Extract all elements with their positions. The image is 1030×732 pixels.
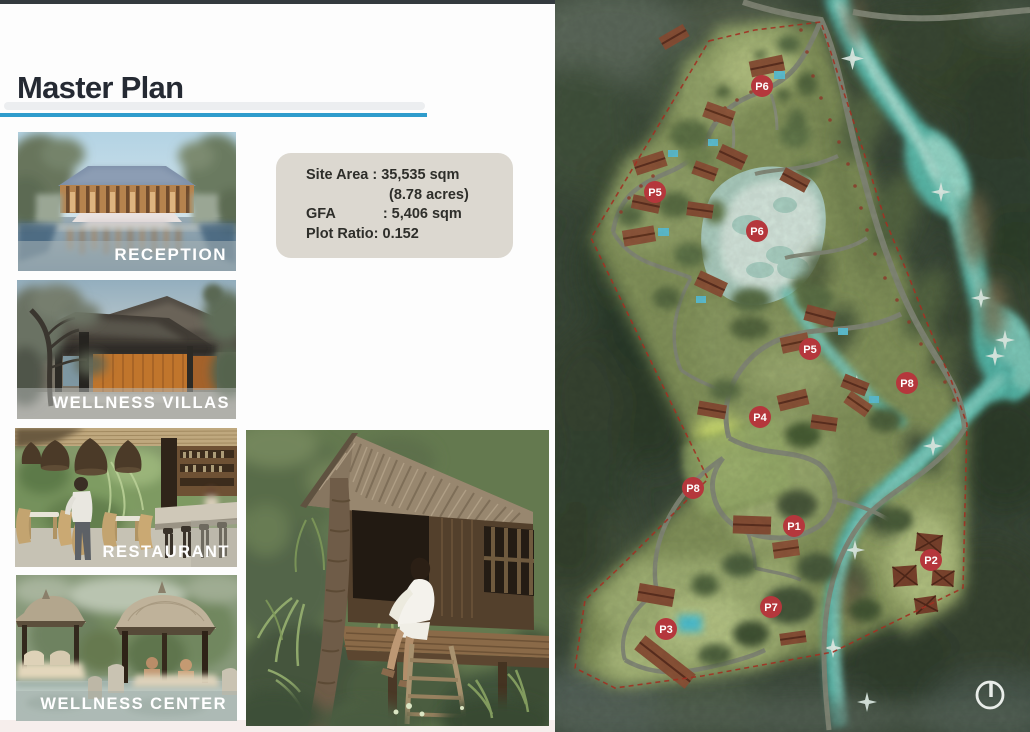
svg-text:P7: P7: [764, 602, 777, 614]
svg-text:P5: P5: [648, 187, 661, 199]
svg-text:P4: P4: [753, 412, 767, 424]
svg-text:P8: P8: [686, 483, 699, 495]
svg-text:P6: P6: [750, 226, 763, 238]
svg-text:P3: P3: [659, 624, 672, 636]
svg-text:P8: P8: [900, 378, 913, 390]
svg-text:P6: P6: [755, 81, 768, 93]
svg-text:P5: P5: [803, 344, 816, 356]
svg-text:P2: P2: [924, 555, 937, 567]
svg-text:P1: P1: [787, 521, 800, 533]
